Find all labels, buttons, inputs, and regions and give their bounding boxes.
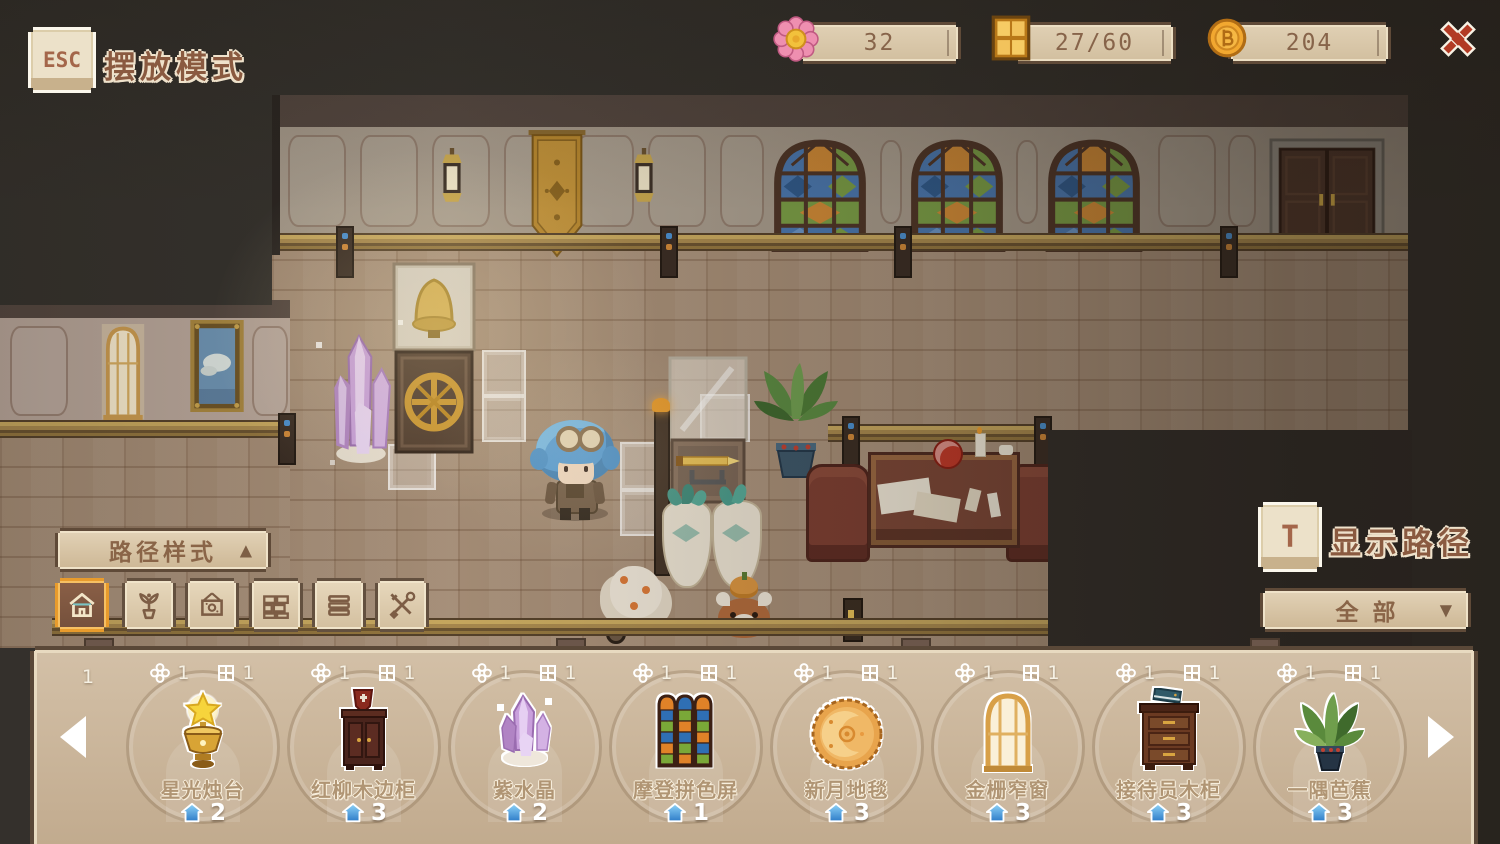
- item-count: 2: [210, 800, 226, 826]
- armchair[interactable]: [806, 464, 870, 562]
- window-slot-counter: 27/60: [1013, 22, 1176, 64]
- item-name: 摩登拼色屏: [605, 774, 766, 803]
- wall-panel: [288, 135, 346, 227]
- paper-scroll: [987, 492, 1001, 517]
- item-sprite-crescent-rug: [809, 696, 885, 776]
- house-count-icon: [823, 801, 849, 825]
- item-card[interactable]: 1 1 星光烛台 2: [122, 656, 283, 844]
- item-card[interactable]: 1 1 接待员木柜 3: [1088, 656, 1249, 844]
- tool-plant-button[interactable]: [122, 578, 176, 632]
- coin-counter-value: 204: [1286, 30, 1334, 56]
- window-cost-icon: [1343, 663, 1363, 683]
- window-cost-value: 1: [243, 662, 255, 684]
- flower-cost-value: 1: [1143, 662, 1155, 684]
- crown-display-cabinet[interactable]: [388, 260, 480, 460]
- railing-post: [894, 226, 912, 278]
- paper-scroll: [965, 488, 982, 512]
- wall-panel: [10, 326, 68, 416]
- item-bar: 1 1 1: [30, 646, 1478, 844]
- flower-cost-value: 1: [660, 662, 672, 684]
- item-sprite-banana-plant: [1296, 688, 1364, 776]
- tool-building-button[interactable]: [55, 578, 109, 632]
- item-name: 金栅窄窗: [927, 774, 1088, 803]
- window-cost-value: 1: [1209, 662, 1221, 684]
- item-card[interactable]: 1 1 红柳木边柜 3: [283, 656, 444, 844]
- wall-lantern[interactable]: [630, 148, 658, 206]
- path-style-label: 路径样式: [109, 533, 217, 567]
- wall-panel: [1016, 140, 1038, 224]
- window-cost-icon: [860, 663, 880, 683]
- floor-icon: [323, 589, 355, 621]
- partial-item-cost: 1: [82, 666, 94, 688]
- flower-cost-value: 1: [499, 662, 511, 684]
- item-sprite-gold-grille-window: [980, 688, 1036, 776]
- game-screen: ESC 摆放模式 32 27/60 204 路径: [0, 0, 1500, 844]
- chevron-up-icon: ▲: [240, 541, 252, 560]
- item-count: 2: [532, 800, 548, 826]
- flower-cost-icon: [311, 663, 331, 683]
- framed-painting[interactable]: [186, 320, 248, 412]
- item-bar-prev-button[interactable]: [58, 714, 88, 760]
- house-count-icon: [179, 801, 205, 825]
- item-name: 新月地毯: [766, 774, 927, 803]
- item-sprite-starlight-candlestick: [171, 688, 235, 776]
- sparkle: [316, 342, 322, 348]
- work-table[interactable]: [868, 452, 1020, 548]
- item-card[interactable]: 1 1 紫水晶 2: [444, 656, 605, 844]
- window-cost-value: 1: [1370, 662, 1382, 684]
- papers: [913, 491, 960, 522]
- tool-tools-button[interactable]: [375, 578, 429, 632]
- item-count: 3: [371, 800, 387, 826]
- sparkle: [398, 320, 403, 325]
- item-count: 3: [1337, 800, 1353, 826]
- flower-cost-icon: [150, 663, 170, 683]
- torch-flame: [652, 398, 670, 412]
- flower-counter-value: 32: [864, 30, 896, 56]
- wall-panel: [1158, 135, 1216, 227]
- gold-railing: [828, 424, 1048, 442]
- flower-counter: 32: [798, 22, 961, 64]
- item-count: 3: [854, 800, 870, 826]
- railing-post: [278, 413, 296, 465]
- wall-panel: [252, 326, 288, 416]
- house-count-icon: [1145, 801, 1171, 825]
- item-sprite-modern-color-screen: [653, 688, 719, 776]
- window-cost-value: 1: [887, 662, 899, 684]
- mode-title: 摆放模式: [104, 42, 248, 87]
- potted-palm[interactable]: [750, 356, 842, 480]
- close-icon[interactable]: [1436, 17, 1480, 61]
- item-name: 接待员木柜: [1088, 774, 1249, 803]
- candle-flame: [977, 427, 982, 434]
- window-cost-value: 1: [404, 662, 416, 684]
- item-card[interactable]: 1 1: [605, 656, 766, 844]
- railing-post: [336, 226, 354, 278]
- sparkle: [330, 460, 335, 465]
- filter-dropdown[interactable]: 全部 ▼: [1260, 588, 1471, 632]
- item-name: 星光烛台: [122, 774, 283, 803]
- window-cost-icon: [1182, 663, 1202, 683]
- flower-cost-icon: [472, 663, 492, 683]
- flower-cost-value: 1: [338, 662, 350, 684]
- coin-icon: [1204, 15, 1250, 61]
- flower-cost-value: 1: [1304, 662, 1316, 684]
- building-icon: [66, 589, 98, 621]
- plant-icon: [133, 589, 165, 621]
- show-path-label: 显示路径: [1330, 518, 1474, 563]
- item-count: 1: [693, 800, 709, 826]
- placement-tile[interactable]: [482, 396, 526, 442]
- path-style-dropdown[interactable]: 路径样式 ▲: [55, 528, 271, 572]
- item-card[interactable]: 1 1 新月地毯 3: [766, 656, 927, 844]
- window-icon: [988, 14, 1034, 62]
- tool-brick-button[interactable]: [249, 578, 303, 632]
- item-sprite-receptionist-cabinet: [1134, 688, 1204, 776]
- item-card[interactable]: 1 1 一隅芭蕉 3: [1249, 656, 1410, 844]
- railing-post: [842, 416, 860, 466]
- flower-cost-icon: [955, 663, 975, 683]
- house-count-icon: [1306, 801, 1332, 825]
- gold-narrow-window[interactable]: [96, 321, 150, 421]
- placement-tile[interactable]: [482, 350, 526, 396]
- tool-floor-button[interactable]: [312, 578, 366, 632]
- chevron-down-icon: ▼: [1440, 601, 1452, 620]
- item-name: 紫水晶: [444, 774, 605, 803]
- tool-painting-button[interactable]: [185, 578, 239, 632]
- window-cost-icon: [377, 663, 397, 683]
- flower-cost-value: 1: [821, 662, 833, 684]
- item-sprite-amethyst: [493, 688, 557, 772]
- candle: [999, 445, 1013, 455]
- flower-cost-value: 1: [177, 662, 189, 684]
- window-slot-counter-value: 27/60: [1055, 30, 1134, 56]
- flower-cost-value: 1: [982, 662, 994, 684]
- sword-display-case[interactable]: [666, 356, 750, 506]
- item-sprite-red-willow-side-cabinet: [332, 688, 396, 776]
- t-key-button[interactable]: T: [1258, 502, 1322, 572]
- wall-panel: [720, 135, 764, 227]
- esc-key-button[interactable]: ESC: [28, 27, 96, 93]
- filter-label: 全部: [1322, 593, 1410, 627]
- amethyst-cluster[interactable]: [328, 330, 394, 464]
- item-bar-next-button[interactable]: [1426, 714, 1456, 760]
- window-cost-value: 1: [1048, 662, 1060, 684]
- item-card[interactable]: 1 1 金栅窄窗 3: [927, 656, 1088, 844]
- coin-counter: 204: [1228, 22, 1391, 64]
- flower-cost-icon: [1277, 663, 1297, 683]
- gold-railing: [0, 420, 290, 438]
- window-cost-icon: [216, 663, 236, 683]
- item-name: 红柳木边柜: [283, 774, 444, 803]
- flower-cost-icon: [1116, 663, 1136, 683]
- house-count-icon: [662, 801, 688, 825]
- item-count: 3: [1015, 800, 1031, 826]
- candle: [975, 433, 986, 457]
- railing-post: [660, 226, 678, 278]
- window-cost-value: 1: [565, 662, 577, 684]
- railing-post: [1220, 226, 1238, 278]
- window-cost-icon: [538, 663, 558, 683]
- wall-lantern[interactable]: [438, 148, 466, 206]
- house-count-icon: [340, 801, 366, 825]
- window-cost-icon: [1021, 663, 1041, 683]
- window-cost-icon: [699, 663, 719, 683]
- tools-icon: [386, 589, 418, 621]
- wall-panel: [1228, 135, 1256, 227]
- crystal-orb: [933, 439, 963, 469]
- player-character[interactable]: [532, 418, 618, 522]
- flower-cost-icon: [633, 663, 653, 683]
- window-cost-value: 1: [726, 662, 738, 684]
- wall-panel: [360, 135, 418, 227]
- flower-icon: [772, 15, 820, 63]
- brick-icon: [260, 589, 292, 621]
- item-name: 一隅芭蕉: [1249, 774, 1410, 803]
- wall-cornice: [272, 95, 1408, 130]
- house-count-icon: [501, 801, 527, 825]
- item-count: 3: [1176, 800, 1192, 826]
- painting-icon: [196, 589, 228, 621]
- flower-cost-icon: [794, 663, 814, 683]
- wall-panel: [880, 140, 902, 224]
- house-count-icon: [984, 801, 1010, 825]
